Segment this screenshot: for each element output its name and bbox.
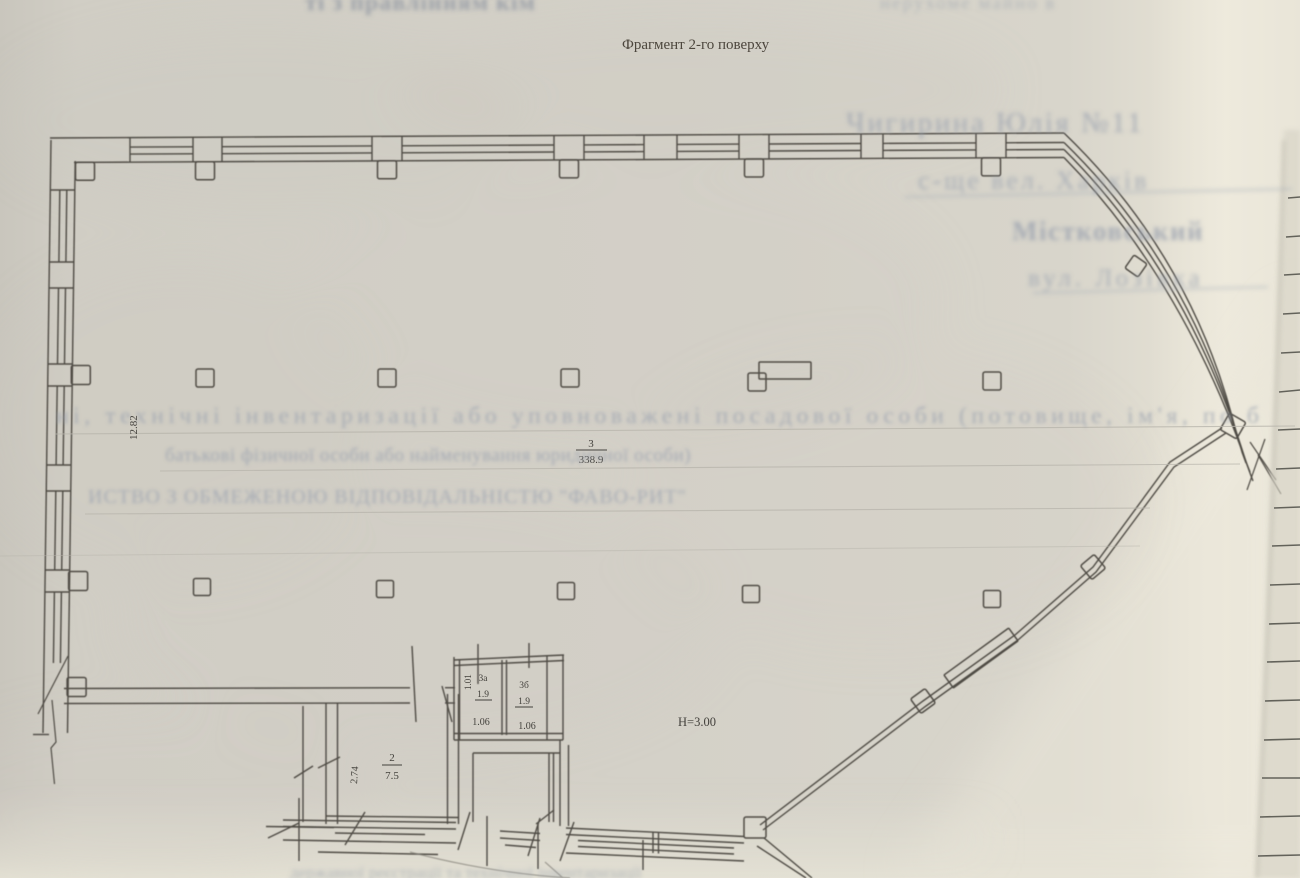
svg-text:7.5: 7.5	[385, 770, 399, 782]
svg-text:3а: 3а	[479, 674, 489, 684]
svg-text:нерухоме майно в: нерухоме майно в	[880, 0, 1056, 14]
svg-text:1.06: 1.06	[472, 717, 490, 728]
svg-text:Н=3.00: Н=3.00	[678, 715, 716, 729]
svg-text:ИСТВО З ОБМЕЖЕНОЮ ВІДПОВІДАЛЬН: ИСТВО З ОБМЕЖЕНОЮ ВІДПОВІДАЛЬНІСТЮ "ФАВО…	[88, 486, 687, 508]
svg-text:Чигирина Юлія №11: Чигирина Юлія №11	[846, 107, 1144, 139]
svg-text:ні, технічні інвентаризації аб: ні, технічні інвентаризації або уповнова…	[56, 403, 1263, 429]
svg-text:3б: 3б	[519, 680, 529, 691]
svg-text:1.9: 1.9	[477, 690, 489, 700]
svg-text:батькові фізичної особи або на: батькові фізичної особи або найменування…	[165, 445, 691, 466]
svg-text:1.01: 1.01	[463, 674, 473, 690]
svg-text:державної реєстрації та техніч: державної реєстрації та технічної інвент…	[290, 863, 642, 878]
svg-text:1.06: 1.06	[518, 721, 536, 732]
svg-text:ті з правлінням кім: ті з правлінням кім	[305, 0, 536, 16]
svg-text:с-ще вел. Харків: с-ще вел. Харків	[918, 166, 1149, 195]
svg-text:2.74: 2.74	[349, 766, 361, 784]
svg-text:Містковський: Містковський	[1012, 216, 1204, 246]
svg-text:вул. Лозівка: вул. Лозівка	[1028, 265, 1204, 292]
svg-text:1.9: 1.9	[518, 697, 530, 707]
svg-text:Фрагмент 2-го поверху: Фрагмент 2-го поверху	[622, 37, 770, 53]
svg-text:2: 2	[389, 752, 395, 764]
